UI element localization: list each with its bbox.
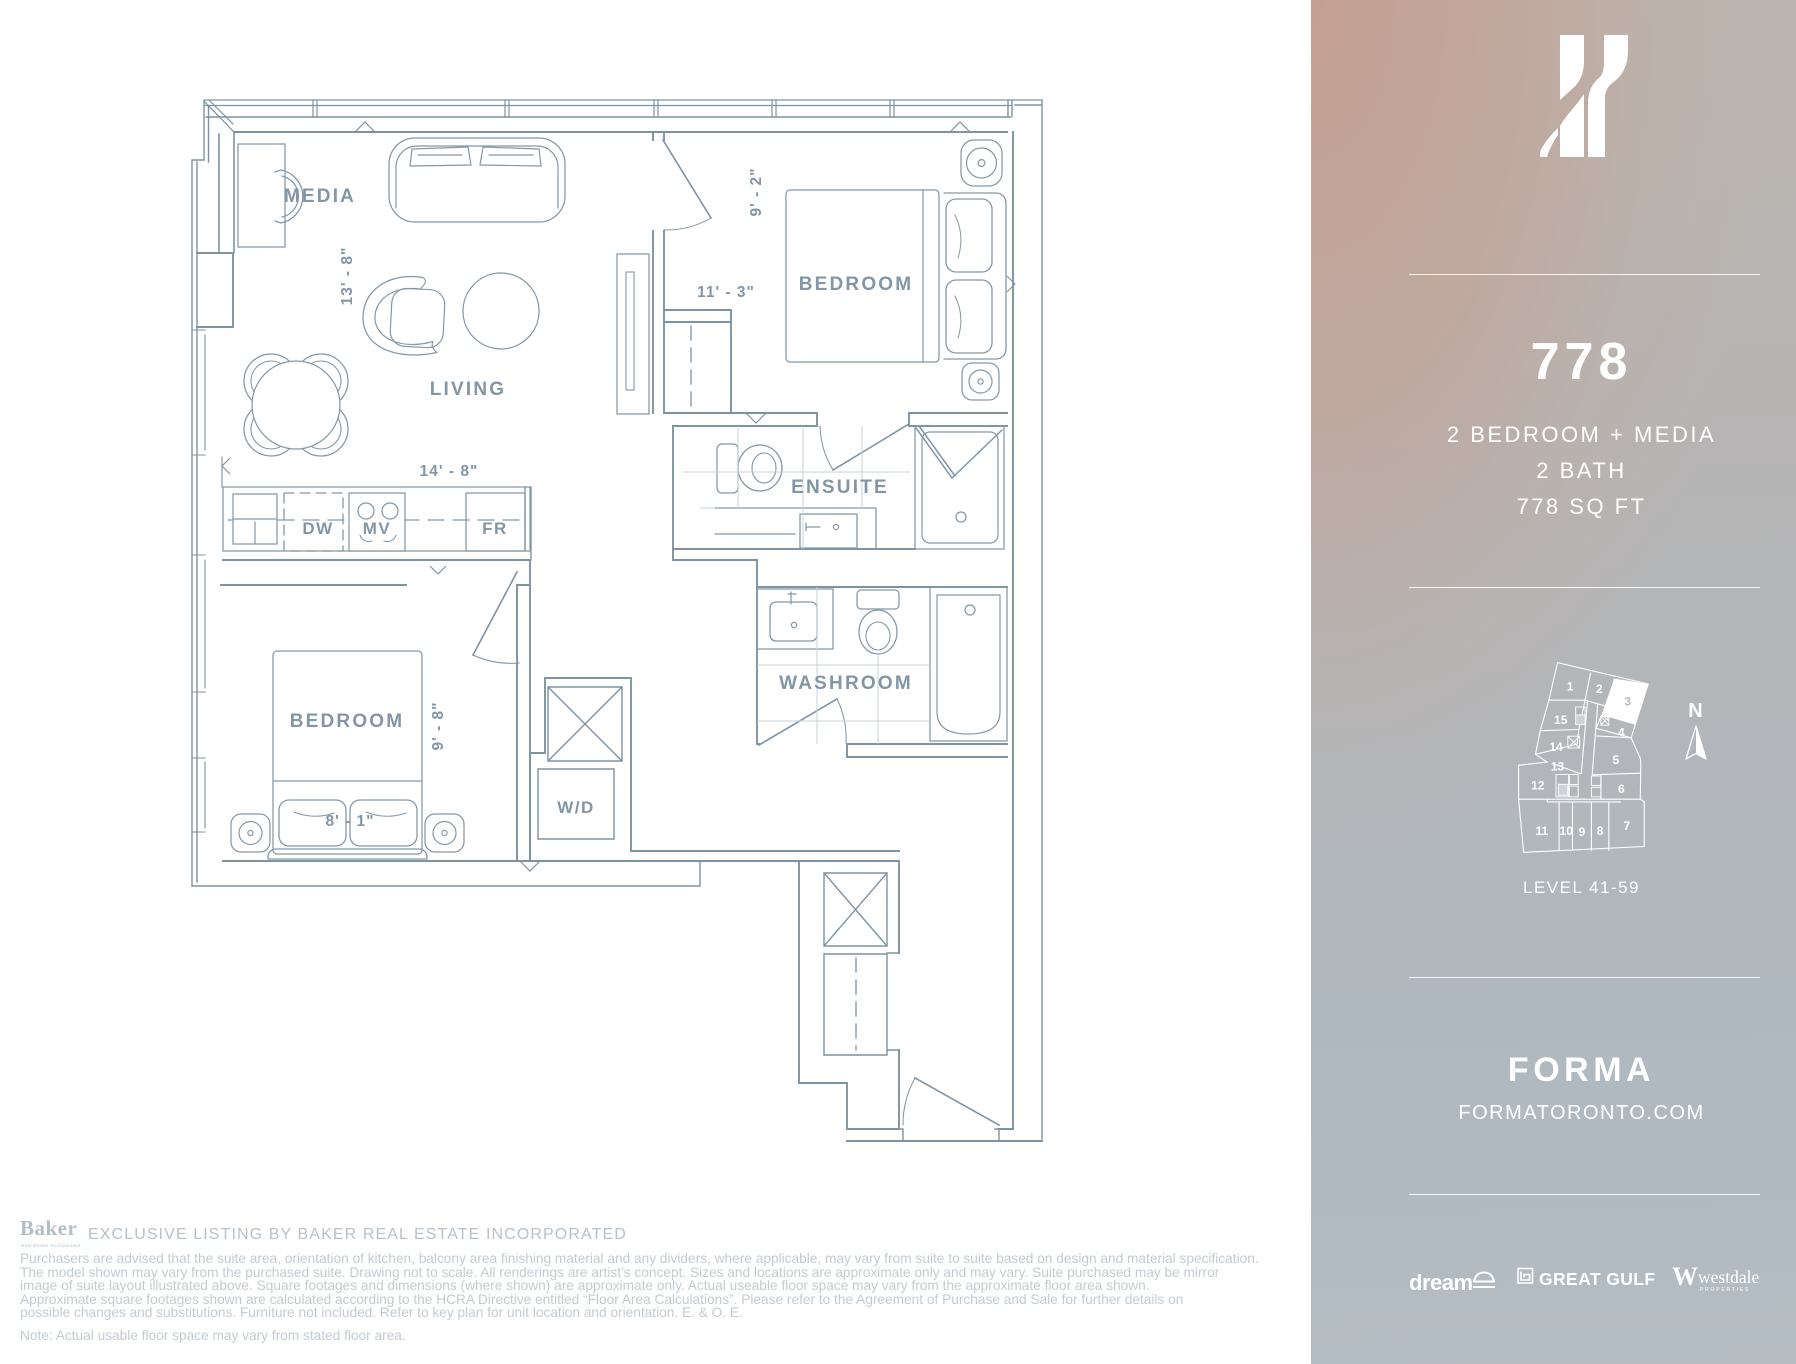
svg-text:3: 3 — [1624, 695, 1631, 709]
svg-text:2: 2 — [1596, 682, 1603, 696]
svg-text:10: 10 — [1560, 824, 1574, 838]
svg-text:LIVING: LIVING — [430, 379, 507, 400]
svg-text:13' - 8": 13' - 8" — [339, 247, 356, 306]
svg-text:PROPERTIES: PROPERTIES — [1700, 1287, 1750, 1293]
svg-text:14' - 8": 14' - 8" — [420, 463, 479, 480]
svg-text:5: 5 — [1613, 753, 1620, 767]
svg-text:WASHROOM: WASHROOM — [779, 673, 913, 694]
svg-text:BEDROOM: BEDROOM — [290, 711, 405, 732]
svg-text:N: N — [1688, 700, 1703, 722]
svg-text:FR: FR — [482, 519, 508, 538]
svg-text:11: 11 — [1535, 824, 1548, 838]
svg-text:9' - 8": 9' - 8" — [430, 701, 447, 750]
svg-text:MV: MV — [363, 519, 392, 538]
svg-text:4: 4 — [1618, 726, 1625, 740]
svg-text:9' - 2": 9' - 2" — [748, 167, 765, 216]
svg-text:15: 15 — [1554, 713, 1568, 727]
svg-text:14: 14 — [1549, 740, 1563, 754]
svg-text:W: W — [1672, 1262, 1698, 1291]
svg-text:6: 6 — [1618, 782, 1625, 796]
svg-text:dream: dream — [1409, 1270, 1473, 1295]
svg-text:MEDIA: MEDIA — [284, 186, 356, 207]
svg-text:GREAT GULF: GREAT GULF — [1539, 1269, 1655, 1289]
svg-text:ENSUITE: ENSUITE — [791, 477, 889, 498]
svg-text:9: 9 — [1579, 825, 1586, 839]
svg-text:W/D: W/D — [557, 798, 595, 817]
svg-text:12: 12 — [1531, 778, 1545, 792]
svg-text:13: 13 — [1551, 759, 1565, 773]
svg-text:westdale: westdale — [1698, 1267, 1759, 1287]
svg-text:BEDROOM: BEDROOM — [799, 274, 914, 295]
svg-text:DW: DW — [302, 519, 333, 538]
svg-text:8' - 1": 8' - 1" — [325, 813, 374, 830]
svg-text:8: 8 — [1597, 824, 1604, 838]
svg-text:1: 1 — [1567, 680, 1574, 694]
svg-text:11' - 3": 11' - 3" — [697, 284, 755, 301]
svg-text:7: 7 — [1624, 819, 1631, 833]
